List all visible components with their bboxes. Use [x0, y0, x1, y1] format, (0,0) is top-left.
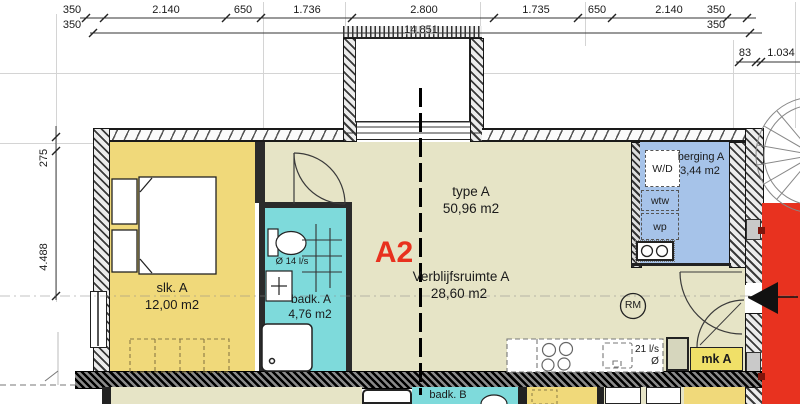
dim-label: 350	[63, 4, 81, 16]
section-line	[419, 88, 423, 395]
left-wall	[93, 128, 110, 387]
bedroom-area-label: 12,00 m2	[145, 297, 199, 312]
lower-unit-room	[527, 387, 597, 404]
storage-bottom-wall	[631, 263, 731, 266]
door-marker	[758, 227, 765, 234]
bathroom-b-name: badk. B	[429, 389, 466, 401]
floor-plan-canvas: W/D wtw wp mk A	[0, 0, 800, 404]
bedroom-living-wall	[255, 142, 265, 203]
dormer-inner	[355, 38, 470, 122]
dim-label: 1.034	[767, 47, 795, 59]
bathroom-a-area	[265, 208, 346, 373]
left-window-frame	[97, 292, 99, 346]
grid-line	[795, 2, 796, 128]
lower-unit-bathtub	[362, 389, 412, 404]
wtw-label: wtw	[651, 195, 669, 207]
grid-line	[345, 2, 346, 28]
grid-line	[585, 2, 586, 46]
washer-dryer-box: W/D	[645, 150, 680, 187]
dim-label: 83	[739, 47, 751, 59]
kitchen-vent-symbol: Ø	[651, 356, 659, 367]
meter-closet-box: mk A	[690, 347, 743, 371]
grid-line	[263, 2, 264, 128]
balcony-lines	[0, 332, 78, 385]
entrance-door-gap	[746, 283, 762, 313]
smoke-detector-label: RM	[625, 299, 641, 311]
lower-unit-room	[684, 387, 745, 404]
meter-closet-label: mk A	[701, 352, 731, 366]
washer-dryer-label: W/D	[652, 163, 672, 175]
lower-unit-cabinet	[646, 387, 681, 404]
wtw-box: wtw	[641, 190, 679, 211]
dim-label: 4.488	[38, 243, 50, 271]
type-label: type A	[452, 184, 490, 199]
top-wall-left	[95, 128, 343, 142]
lower-unit-wall	[102, 387, 111, 404]
corridor-highlight	[762, 203, 800, 404]
grid-line	[0, 143, 95, 144]
dim-label: 275	[38, 149, 50, 167]
bedroom-area	[108, 142, 255, 373]
storage-name: berging A	[678, 151, 724, 163]
dim-label-total: 14.851	[404, 24, 438, 36]
top-wall-right	[482, 128, 762, 142]
living-name: Verblijfsruimte A	[413, 269, 510, 284]
kitchen-cabinet	[666, 337, 689, 371]
dim-label: 2.140	[655, 4, 683, 16]
bathroom-a-name: badk. A	[291, 292, 331, 306]
bathroom-a-area-label: 4,76 m2	[288, 307, 331, 321]
right-wall-block	[746, 352, 761, 372]
kitchen-vent-label: 21 l/s	[635, 344, 659, 355]
wp-label: wp	[653, 221, 666, 233]
unit-label: A2	[375, 236, 413, 270]
bedroom-name: slk. A	[156, 280, 187, 295]
dim-label: 650	[588, 4, 606, 16]
dim-label: 350	[707, 4, 725, 16]
living-area-label: 28,60 m2	[431, 286, 487, 301]
meter-box	[636, 241, 674, 261]
type-area-label: 50,96 m2	[443, 201, 499, 216]
storage-area-label: 3,44 m2	[680, 165, 720, 177]
door-marker	[758, 373, 765, 380]
dim-label: 1.735	[522, 4, 550, 16]
dim-label: 350	[63, 19, 81, 31]
grid-line	[733, 40, 734, 128]
grid-line	[480, 2, 481, 28]
dim-label: 2.140	[152, 4, 180, 16]
dim-label: 350	[707, 19, 725, 31]
wp-box: wp	[641, 213, 679, 240]
dim-label: 2.800	[410, 4, 438, 16]
dormer-right-wall	[470, 38, 484, 142]
lower-unit-wall	[597, 387, 604, 404]
grid-line	[56, 14, 57, 302]
bathroom-a-vent-label: Ø 14 l/s	[276, 256, 309, 267]
lower-unit-cabinet	[605, 387, 641, 404]
dim-label: 1.736	[293, 4, 321, 16]
dim-label: 650	[234, 4, 252, 16]
lower-unit-wall	[518, 387, 527, 404]
lower-unit-room	[111, 387, 362, 404]
